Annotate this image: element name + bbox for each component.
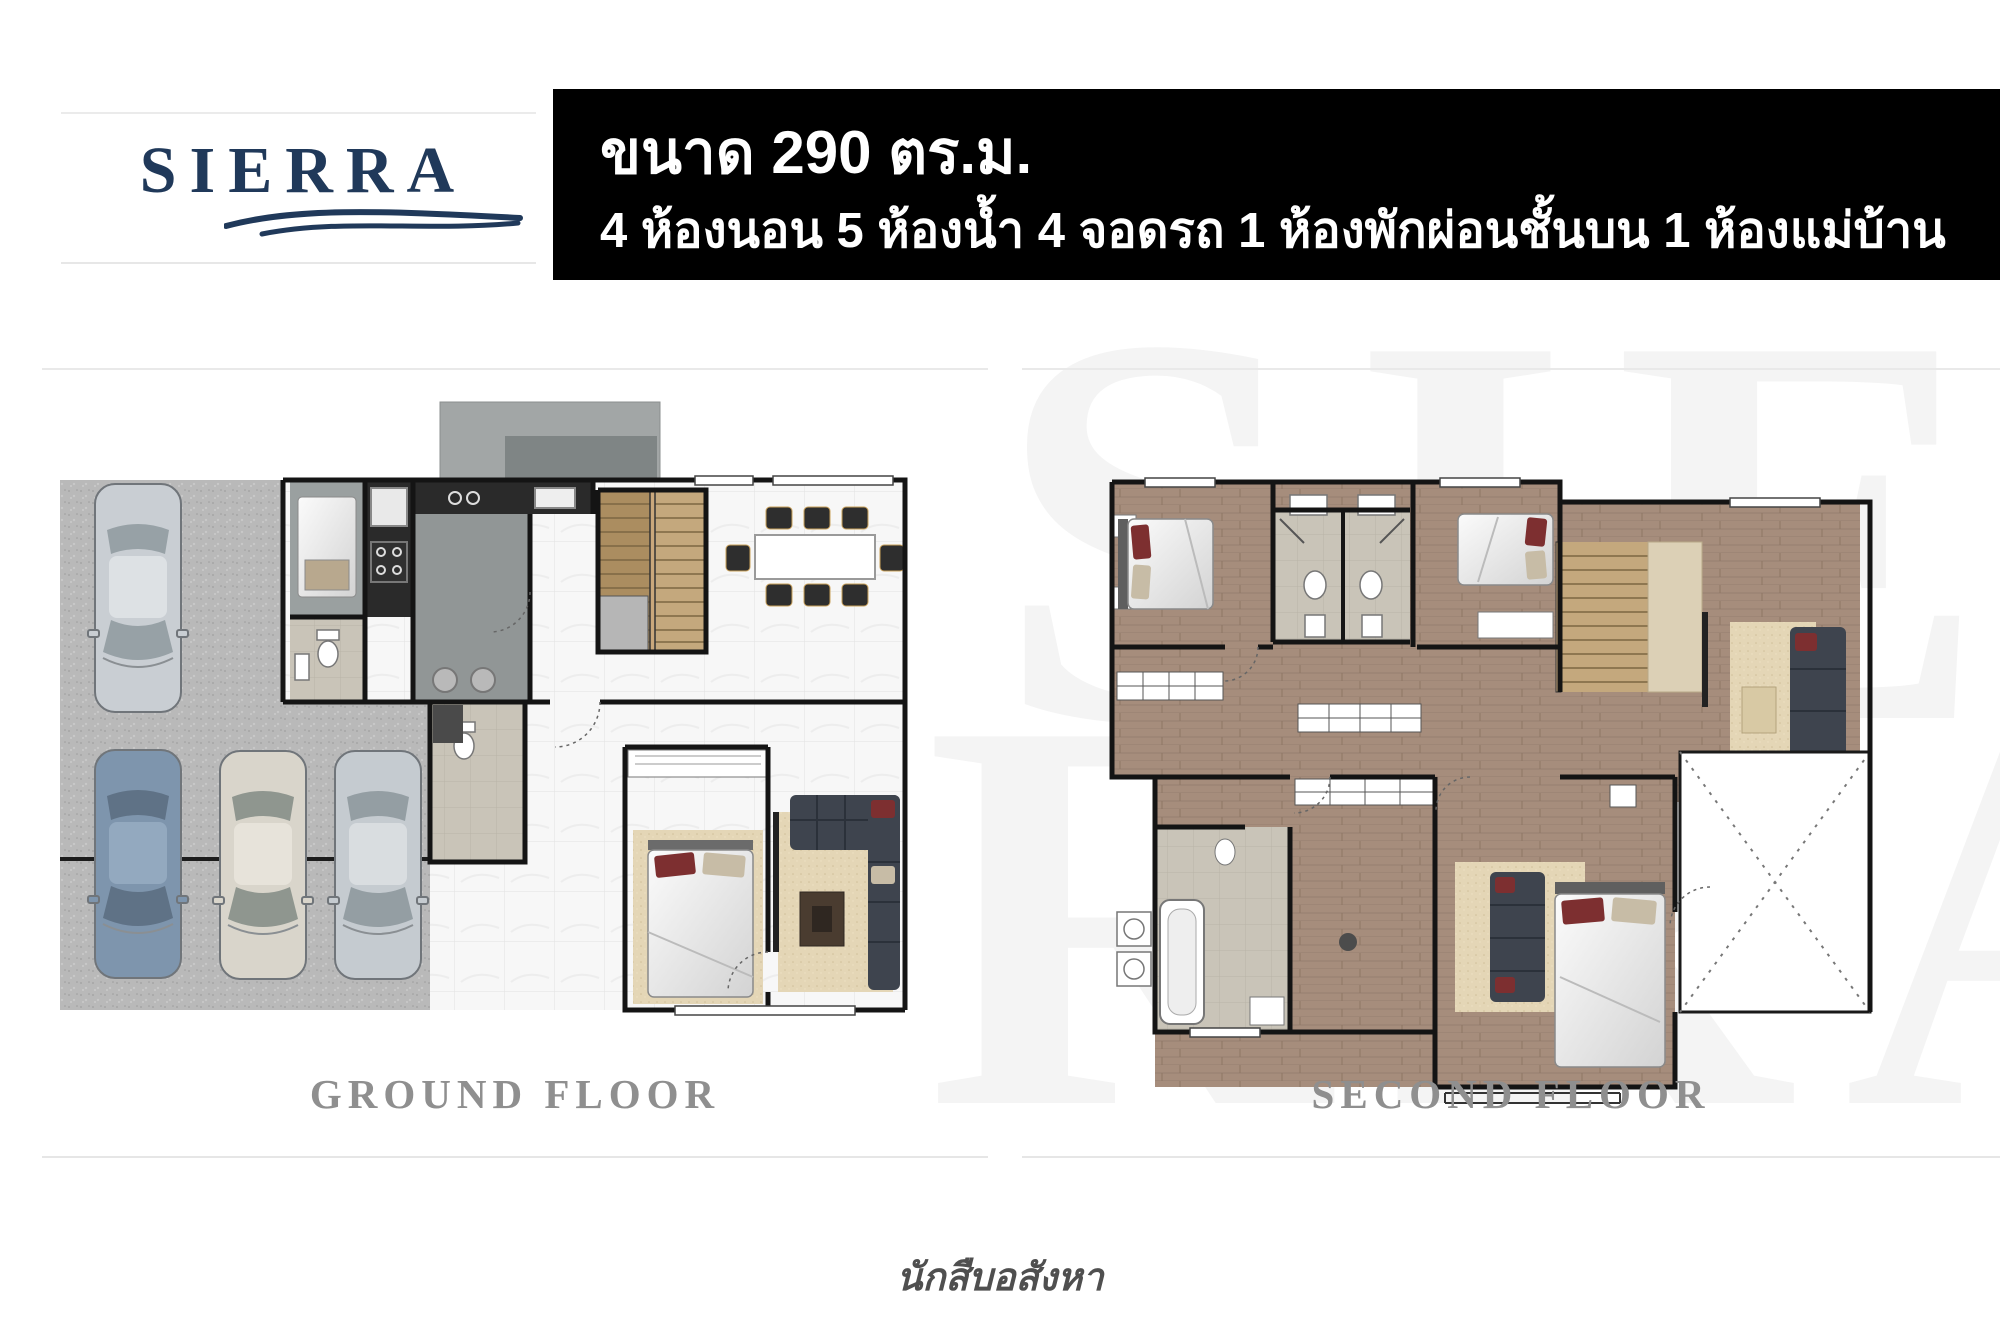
brochure-page: SIE RRA SIERRA ขนาด 290 ตร.ม. 4 ห้องนอน … [0,0,2000,1317]
bedroom-3 [1114,515,1213,609]
ground-floor-label: GROUND FLOOR [42,1070,988,1118]
roof-box-inner [505,436,657,480]
shower-icon [433,705,463,743]
car-white-icon [213,751,313,979]
brand-logo-card: SIERRA [61,112,536,264]
ground-floor-card: GROUND FLOOR [42,368,988,1158]
car-silver-icon [328,751,428,979]
second-floor-plan [1090,457,1890,1112]
spec-rooms-text: 4 ห้องนอน 5 ห้องน้ำ 4 จอดรถ 1 ห้องพักผ่อ… [600,191,1946,269]
spec-size-text: ขนาด 290 ตร.ม. [600,105,1032,200]
ground-floor-plan [55,392,915,1020]
second-floor-card: SECOND FLOOR [1022,368,2000,1158]
double-height-void [1680,752,1870,1012]
maid-bed [298,497,356,597]
stairs [598,490,706,652]
second-floor-label: SECOND FLOOR [1022,1070,2000,1118]
logo-wave-icon [224,206,524,238]
pouf-icon [1339,933,1357,951]
car-blue-icon [88,750,188,978]
laundry-icon [1117,912,1151,986]
brand-logo-text: SIERRA [140,138,467,204]
car-silver-top-icon [88,484,188,712]
spec-banner: ขนาด 290 ตร.ม. 4 ห้องนอน 5 ห้องน้ำ 4 จอด… [553,89,2000,280]
stairs-upper [1556,542,1702,692]
credit-text: นักสืบอสังหา [0,1246,2000,1307]
kitchen-floor [413,482,530,700]
tv-panel [1702,612,1708,707]
living-room [773,795,900,992]
